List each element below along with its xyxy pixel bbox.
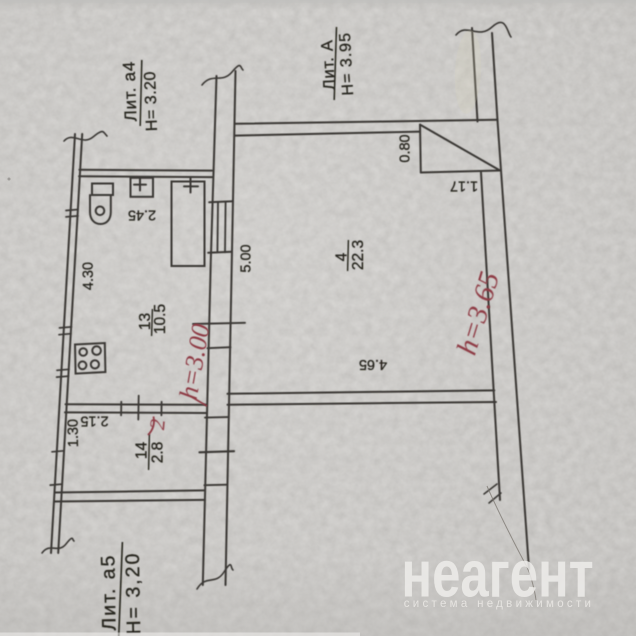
svg-text:5.00: 5.00 [239,244,255,272]
svg-text:1.17: 1.17 [450,178,478,194]
svg-text:14: 14 [134,442,151,460]
svg-text:Лит. а4: Лит. а4 [119,61,140,122]
svg-text:2.8: 2.8 [150,442,167,464]
svg-text:2.45: 2.45 [128,207,156,223]
svg-text:2.15: 2.15 [80,413,108,429]
svg-text:Н= 3,20: Н= 3,20 [122,551,145,634]
svg-text:Н= 3.95: Н= 3.95 [337,32,357,96]
svg-text:система недвижимости: система недвижимости [404,598,595,610]
svg-text:22.3: 22.3 [350,240,367,270]
svg-text:Лит. а5: Лит. а5 [97,553,120,630]
svg-text:0.80: 0.80 [398,134,414,162]
svg-text:Н= 3.20: Н= 3.20 [142,71,161,132]
svg-text:10.5: 10.5 [152,304,169,334]
svg-text:4.65: 4.65 [359,356,387,372]
svg-text:4.30: 4.30 [80,262,96,291]
svg-text:1.30: 1.30 [65,419,81,448]
